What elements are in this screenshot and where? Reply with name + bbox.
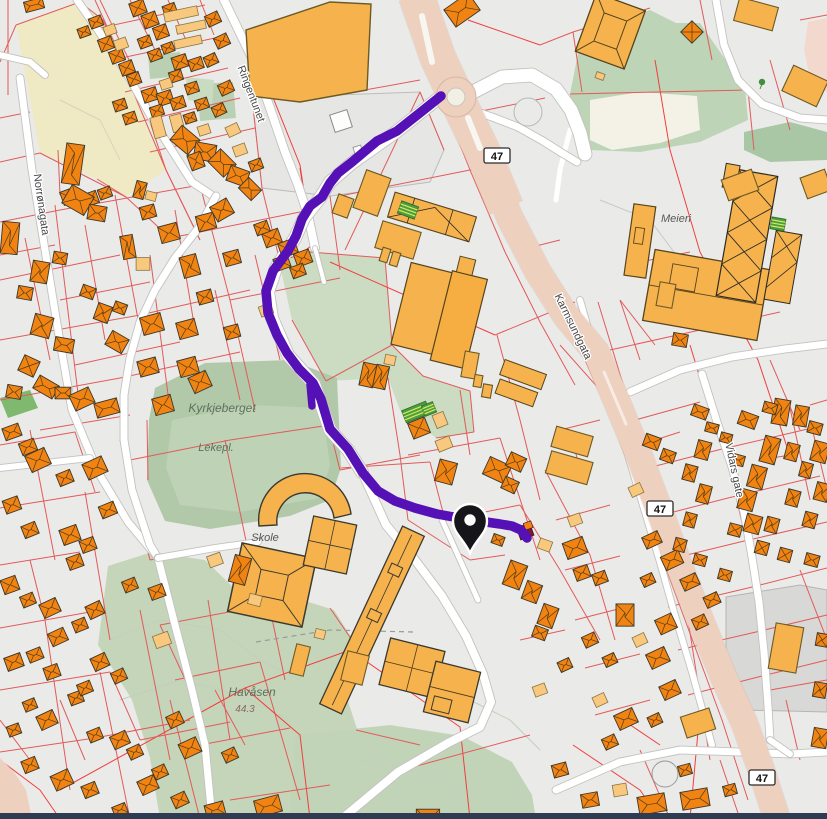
svg-text:Skole: Skole <box>251 532 279 544</box>
svg-text:47: 47 <box>654 504 666 516</box>
svg-text:47: 47 <box>756 773 768 785</box>
svg-text:47: 47 <box>491 151 503 163</box>
svg-text:44.3: 44.3 <box>235 704 255 715</box>
svg-text:Lekepl.: Lekepl. <box>198 442 233 454</box>
svg-text:Havåsen: Havåsen <box>228 685 276 699</box>
svg-text:Kyrkjeberget: Kyrkjeberget <box>188 401 256 415</box>
svg-text:Meieri: Meieri <box>661 213 692 225</box>
